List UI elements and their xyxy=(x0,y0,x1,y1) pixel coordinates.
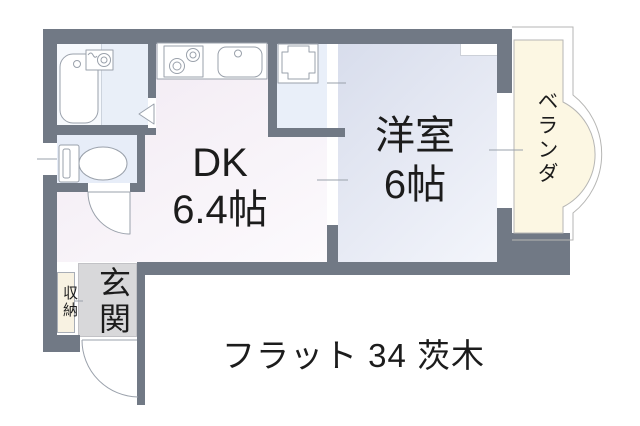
toilet-bowl-icon xyxy=(79,147,127,180)
storage-label: 収納 xyxy=(59,285,80,319)
western-room-area: 6帖 xyxy=(330,161,500,210)
toilet-door-swing-icon xyxy=(88,192,130,234)
dk-room-name: DK xyxy=(130,140,310,187)
washbasin-tap-icon xyxy=(101,57,107,63)
toilet-lid-icon xyxy=(63,149,70,178)
dk-room-area: 6.4帖 xyxy=(130,187,310,234)
building-caption: フラット 34 茨木 xyxy=(222,329,485,377)
floor-plan: DK 6.4帖 洋室 6帖 ベランダ 玄関 収納 フラット 34 茨木 xyxy=(0,0,640,426)
western-room-name: 洋室 xyxy=(330,112,500,161)
western-room-label: 洋室 6帖 xyxy=(330,112,500,210)
bathtub-drain-icon xyxy=(74,61,81,68)
entrance-label: 玄関 xyxy=(90,266,136,338)
entrance-door-swing-icon xyxy=(82,340,138,397)
veranda-label: ベランダ xyxy=(531,90,561,186)
kitchen-faucet-icon xyxy=(235,50,242,57)
stove-burner2-inner-icon xyxy=(190,52,196,58)
bathroom-door-icon xyxy=(139,104,154,124)
dk-room-label: DK 6.4帖 xyxy=(130,140,310,234)
stove-burner-inner-icon xyxy=(173,62,181,70)
